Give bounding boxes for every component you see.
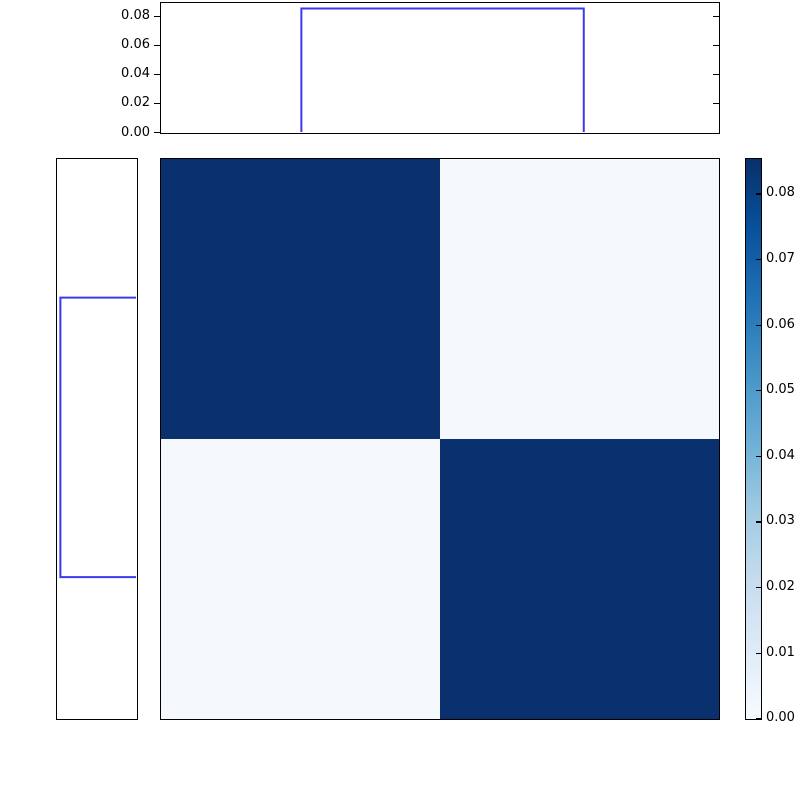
colorbar-tick xyxy=(756,718,761,719)
y-axis-tick-label: 0.04 xyxy=(102,66,150,82)
y-axis-tick-right xyxy=(713,74,719,75)
colorbar-tick-label: 0.01 xyxy=(766,645,800,661)
y-axis-tick xyxy=(154,45,160,46)
colorbar-tick xyxy=(756,587,761,588)
y-axis-tick xyxy=(154,103,160,104)
colorbar-tick xyxy=(756,325,761,326)
colorbar-tick-label: 0.05 xyxy=(766,382,800,398)
top-marginal-step-line xyxy=(301,9,583,132)
heatmap-cell-r0c1 xyxy=(440,159,719,439)
colorbar-tick xyxy=(756,193,761,194)
y-axis-tick-right xyxy=(713,103,719,104)
left-marginal-panel xyxy=(56,158,138,720)
colorbar-tick-label: 0.00 xyxy=(766,710,800,726)
colorbar-tick xyxy=(756,456,761,457)
colorbar-tick xyxy=(756,390,761,391)
colorbar-tick-label: 0.03 xyxy=(766,513,800,529)
colorbar-tick xyxy=(756,521,761,522)
colorbar-tick-label: 0.06 xyxy=(766,317,800,333)
heatmap-cell-r1c1 xyxy=(440,439,719,719)
y-axis-tick-right xyxy=(713,16,719,17)
y-axis-tick xyxy=(154,74,160,75)
y-axis-tick xyxy=(154,16,160,17)
colorbar-tick-label: 0.04 xyxy=(766,448,800,464)
figure: 0.000.020.040.060.080.000.010.020.030.04… xyxy=(0,0,800,800)
y-axis-tick-label: 0.00 xyxy=(102,125,150,141)
y-axis-tick-label: 0.06 xyxy=(102,37,150,53)
y-axis-tick xyxy=(154,132,160,133)
heatmap-cell-r0c0 xyxy=(161,159,440,439)
left-marginal-step-plot xyxy=(57,159,136,718)
y-axis-tick-right xyxy=(713,45,719,46)
y-axis-tick-label: 0.08 xyxy=(102,8,150,24)
colorbar-tick-label: 0.07 xyxy=(766,251,800,267)
heatmap xyxy=(160,158,720,720)
left-marginal-step-line xyxy=(60,298,136,578)
y-axis-tick-label: 0.02 xyxy=(102,95,150,111)
colorbar xyxy=(745,158,762,720)
colorbar-tick xyxy=(756,259,761,260)
heatmap-cell-r1c0 xyxy=(161,439,440,719)
top-marginal-panel xyxy=(160,2,720,134)
colorbar-tick-label: 0.02 xyxy=(766,579,800,595)
colorbar-tick xyxy=(756,653,761,654)
top-marginal-step-plot xyxy=(161,3,721,132)
colorbar-tick-label: 0.08 xyxy=(766,185,800,201)
